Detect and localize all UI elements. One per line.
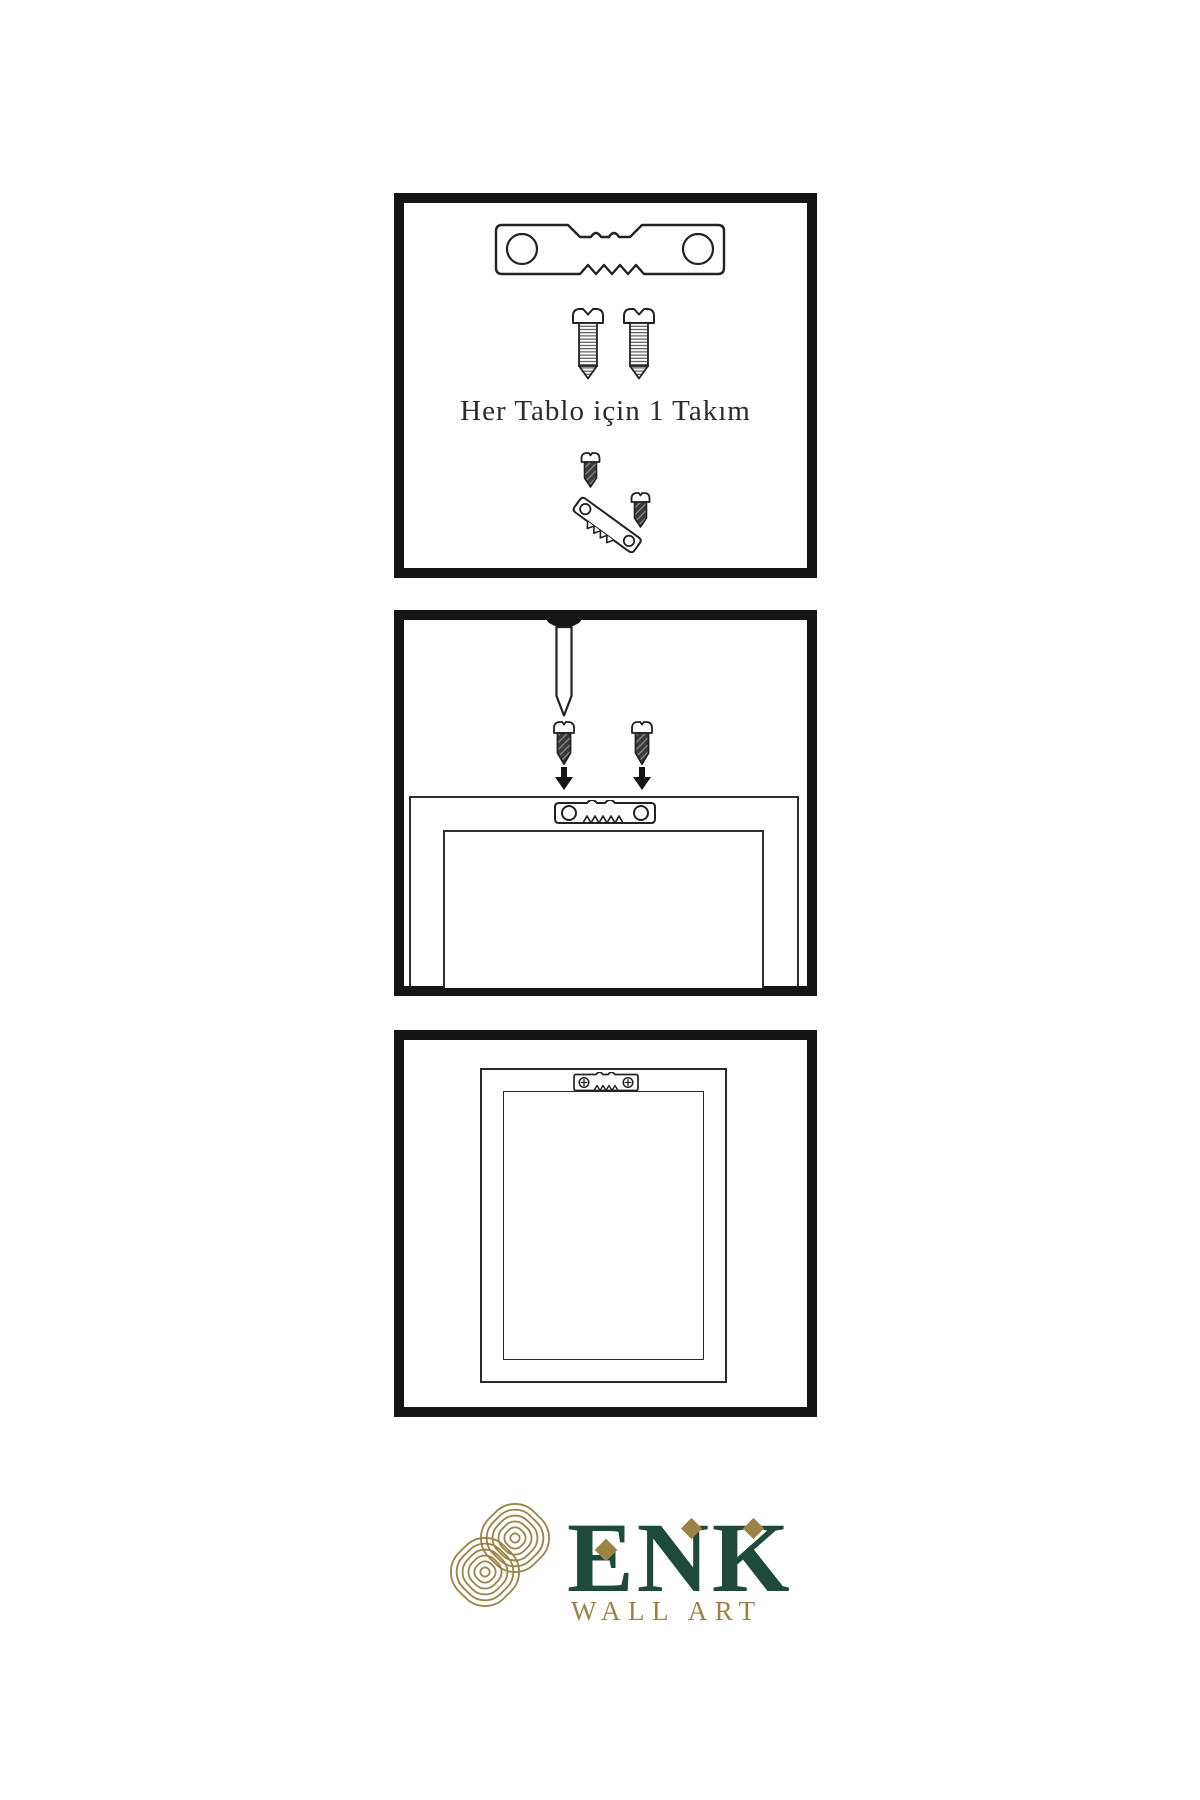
screw-icon [570, 306, 606, 380]
brand-subtitle: WALL ART [571, 1596, 763, 1627]
sawtooth-hanger-icon [553, 800, 657, 826]
step-1-panel: Her Tablo için 1 Takım [394, 193, 817, 578]
step-1-content: Her Tablo için 1 Takım [404, 203, 807, 568]
hung-frame-inner-edge [503, 1091, 704, 1360]
brand-block: ENK WALL ART [437, 1484, 797, 1644]
screw-down-arrow-icon [551, 720, 577, 792]
instruction-sheet: Her Tablo için 1 Takım [0, 0, 1200, 1800]
step-3-panel [394, 1030, 817, 1417]
mounted-sawtooth-hanger-icon [572, 1072, 640, 1093]
set-caption: Her Tablo için 1 Takım [404, 395, 807, 428]
screw-icon [621, 306, 657, 380]
sawtooth-hanger-icon [492, 221, 728, 278]
screw-down-arrow-icon [629, 720, 655, 792]
step-3-content [404, 1040, 807, 1407]
frame-back-inner-edge [443, 830, 764, 988]
nail-icon [542, 614, 586, 718]
screw-into-hanger-icon [572, 449, 656, 553]
hung-frame-icon [480, 1068, 727, 1383]
step-2-panel [394, 610, 817, 996]
step-2-content [404, 620, 807, 986]
knot-emblem-icon [437, 1484, 563, 1627]
